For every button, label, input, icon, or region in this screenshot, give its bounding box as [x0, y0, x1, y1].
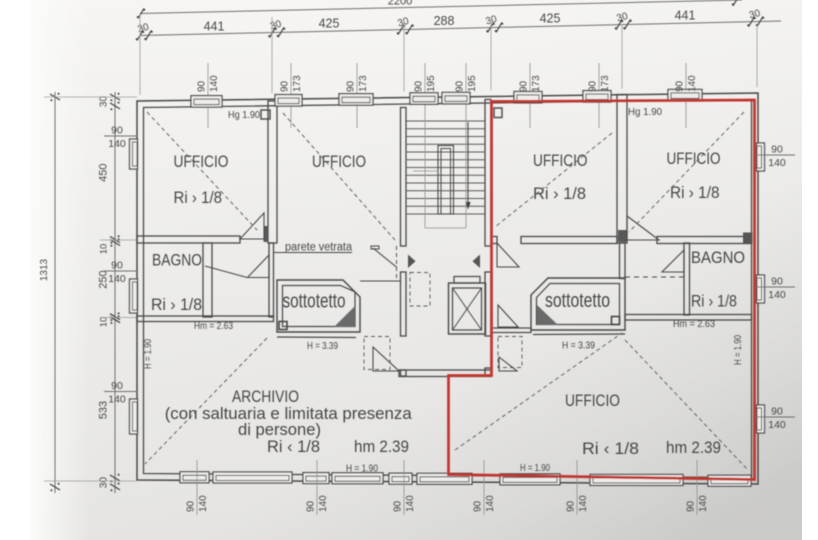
svg-text:140: 140 [768, 289, 786, 301]
svg-text:H = 3.39: H = 3.39 [307, 340, 338, 352]
svg-text:90: 90 [393, 500, 404, 512]
svg-text:140: 140 [768, 419, 786, 431]
svg-text:195: 195 [426, 75, 437, 92]
svg-text:hm 2.39: hm 2.39 [666, 438, 721, 457]
svg-text:441: 441 [675, 9, 696, 23]
svg-text:Ri › 1/8: Ri › 1/8 [533, 184, 586, 203]
svg-text:1313: 1313 [39, 258, 50, 281]
svg-text:H = 3.39: H = 3.39 [562, 340, 595, 352]
svg-text:173: 173 [531, 75, 542, 92]
svg-text:UFFICIO: UFFICIO [565, 392, 620, 410]
svg-text:Hm = 2.63: Hm = 2.63 [673, 318, 715, 330]
svg-text:140: 140 [405, 495, 416, 512]
svg-text:90: 90 [519, 80, 530, 92]
svg-text:90: 90 [771, 276, 783, 288]
svg-text:140: 140 [108, 138, 126, 150]
svg-text:Ri › 1/8: Ri › 1/8 [174, 188, 223, 207]
svg-text:90: 90 [588, 80, 599, 92]
svg-text:Ri ‹ 1/8: Ri ‹ 1/8 [582, 439, 639, 458]
svg-text:140: 140 [198, 495, 209, 512]
svg-text:90: 90 [566, 500, 577, 512]
svg-text:10: 10 [99, 244, 110, 255]
svg-text:140: 140 [485, 495, 496, 512]
svg-text:90: 90 [111, 260, 123, 272]
svg-text:425: 425 [540, 12, 561, 26]
svg-text:UFFICIO: UFFICIO [533, 152, 588, 170]
svg-text:sottotetto: sottotetto [545, 290, 610, 312]
svg-text:90: 90 [111, 125, 123, 137]
svg-text:90: 90 [675, 80, 686, 92]
svg-text:Hg 1.90: Hg 1.90 [228, 109, 260, 121]
svg-text:sottotetto: sottotetto [283, 291, 346, 313]
svg-text:H = 1.90: H = 1.90 [733, 335, 744, 365]
svg-text:425: 425 [319, 17, 340, 31]
svg-text:90: 90 [186, 500, 197, 512]
svg-text:140: 140 [698, 495, 709, 512]
svg-text:90: 90 [280, 80, 291, 92]
svg-text:Ri › 1/8: Ri › 1/8 [691, 292, 737, 311]
svg-text:90: 90 [473, 500, 484, 512]
svg-text:140: 140 [209, 75, 220, 92]
svg-text:90: 90 [346, 80, 357, 92]
svg-text:hm 2.39: hm 2.39 [354, 437, 409, 456]
svg-text:90: 90 [686, 500, 697, 512]
svg-text:441: 441 [204, 19, 225, 33]
svg-text:Hg 1.90: Hg 1.90 [628, 106, 662, 118]
svg-text:BAGNO: BAGNO [691, 249, 745, 267]
svg-text:90: 90 [771, 144, 783, 156]
svg-text:BAGNO: BAGNO [152, 252, 202, 270]
svg-text:90: 90 [455, 80, 466, 92]
svg-text:173: 173 [600, 75, 611, 92]
svg-text:Ri ‹ 1/8: Ri ‹ 1/8 [267, 437, 320, 456]
svg-text:H = 1.90: H = 1.90 [143, 339, 154, 369]
svg-text:90: 90 [771, 406, 783, 418]
svg-text:140: 140 [687, 75, 698, 92]
svg-text:di persone): di persone) [238, 420, 321, 439]
svg-text:2200: 2200 [388, 0, 412, 8]
svg-text:140: 140 [108, 394, 126, 406]
svg-text:UFFICIO: UFFICIO [174, 153, 229, 171]
svg-text:H = 1.90: H = 1.90 [346, 463, 378, 475]
svg-text:Ri › 1/8: Ri › 1/8 [670, 183, 720, 202]
svg-text:parete vetrata: parete vetrata [285, 242, 353, 254]
svg-text:90: 90 [414, 80, 425, 92]
svg-text:90: 90 [197, 80, 208, 92]
svg-text:140: 140 [768, 157, 786, 169]
svg-text:H = 1.90: H = 1.90 [520, 462, 550, 474]
svg-text:173: 173 [292, 75, 303, 92]
svg-text:450: 450 [98, 164, 110, 182]
svg-text:UFFICIO: UFFICIO [667, 150, 721, 168]
svg-text:UFFICIO: UFFICIO [312, 153, 366, 171]
svg-text:90: 90 [306, 500, 317, 512]
svg-text:140: 140 [108, 273, 126, 285]
svg-text:30: 30 [99, 477, 110, 489]
svg-text:Hm = 2.63: Hm = 2.63 [194, 320, 233, 332]
svg-text:173: 173 [358, 75, 369, 92]
svg-text:Ri › 1/8: Ri › 1/8 [151, 295, 202, 314]
svg-text:90: 90 [111, 380, 123, 392]
svg-text:140: 140 [318, 495, 329, 512]
svg-text:10: 10 [99, 317, 110, 328]
svg-text:288: 288 [434, 14, 455, 28]
svg-text:195: 195 [467, 75, 478, 92]
svg-text:140: 140 [578, 495, 589, 512]
